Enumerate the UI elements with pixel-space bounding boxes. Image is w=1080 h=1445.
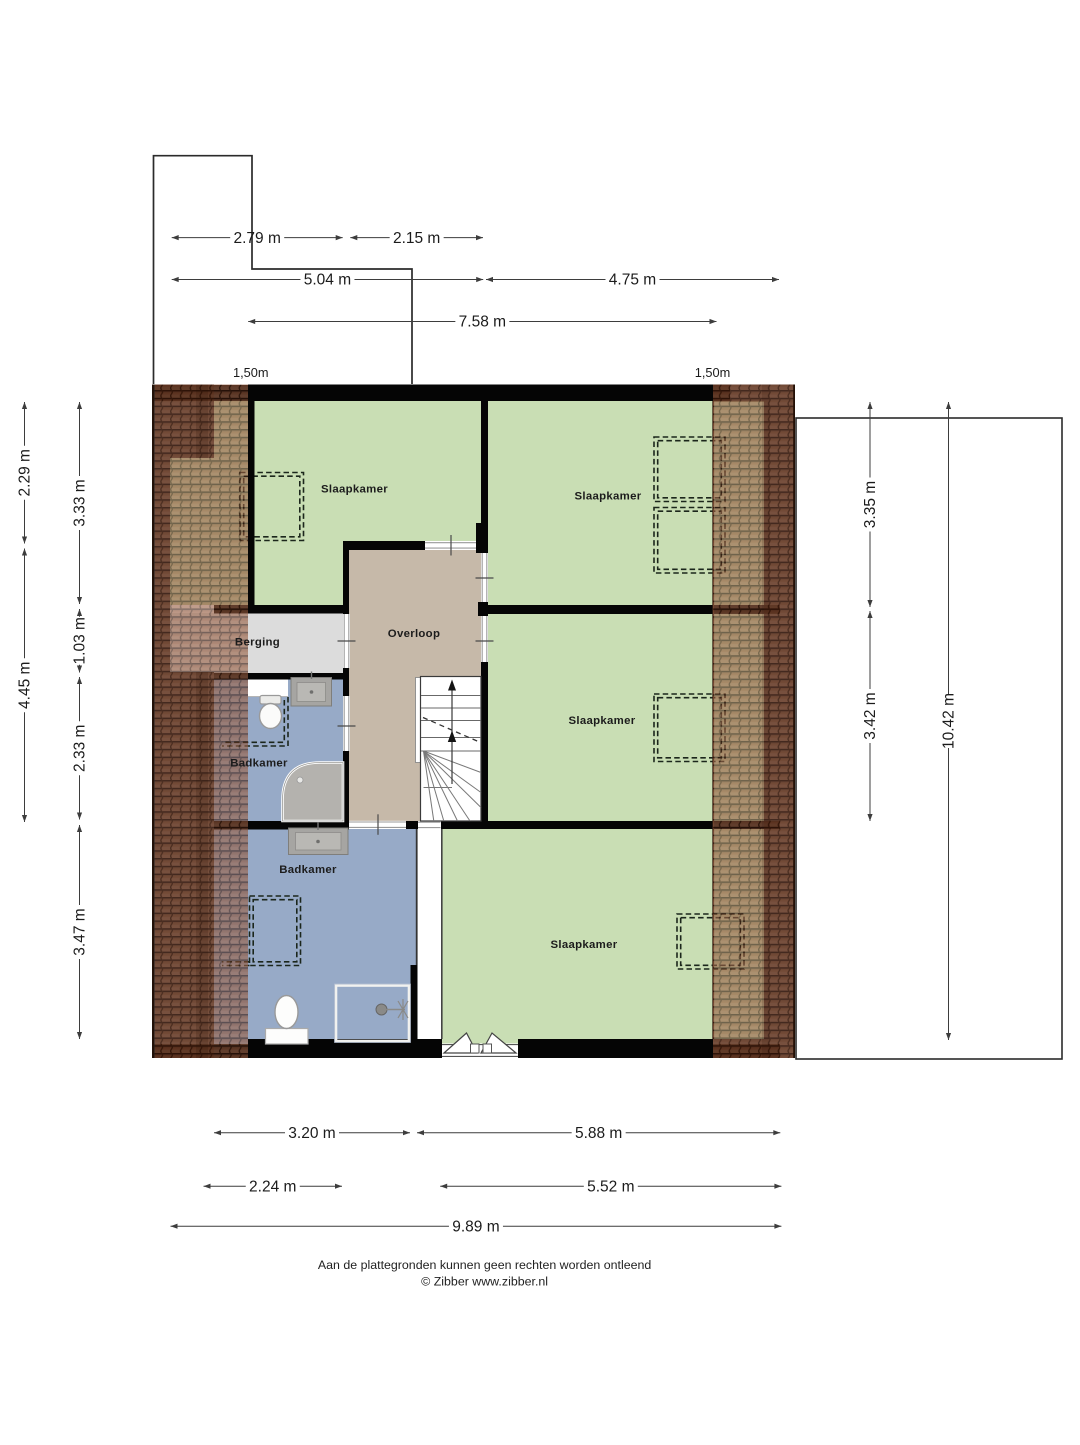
svg-text:4.75 m: 4.75 m bbox=[609, 272, 656, 289]
svg-text:2.29 m: 2.29 m bbox=[17, 449, 34, 496]
svg-text:Slaapkamer: Slaapkamer bbox=[321, 484, 388, 496]
svg-text:Slaapkamer: Slaapkamer bbox=[575, 491, 642, 503]
svg-text:10.42 m: 10.42 m bbox=[941, 693, 958, 749]
svg-text:2.15 m: 2.15 m bbox=[393, 230, 440, 247]
svg-text:7.58 m: 7.58 m bbox=[459, 314, 506, 331]
svg-text:1,50m: 1,50m bbox=[233, 365, 269, 380]
svg-text:3.35 m: 3.35 m bbox=[862, 481, 879, 528]
svg-text:1.03 m: 1.03 m bbox=[72, 617, 89, 664]
svg-text:Badkamer: Badkamer bbox=[230, 758, 288, 770]
svg-text:3.33 m: 3.33 m bbox=[72, 479, 89, 526]
svg-text:2.79 m: 2.79 m bbox=[234, 230, 281, 247]
svg-text:Overloop: Overloop bbox=[388, 628, 440, 640]
svg-text:2.33 m: 2.33 m bbox=[72, 725, 89, 772]
svg-text:2.24 m: 2.24 m bbox=[249, 1178, 296, 1195]
svg-text:Badkamer: Badkamer bbox=[279, 864, 337, 876]
svg-text:5.04 m: 5.04 m bbox=[304, 272, 351, 289]
svg-text:Slaapkamer: Slaapkamer bbox=[569, 715, 636, 727]
svg-text:4.45 m: 4.45 m bbox=[17, 662, 34, 709]
svg-text:Aan de plattegronden kunnen ge: Aan de plattegronden kunnen geen rechten… bbox=[318, 1258, 652, 1272]
svg-text:5.88 m: 5.88 m bbox=[575, 1125, 622, 1142]
svg-text:9.89 m: 9.89 m bbox=[452, 1218, 499, 1235]
svg-text:1,50m: 1,50m bbox=[695, 365, 731, 380]
svg-text:Slaapkamer: Slaapkamer bbox=[551, 939, 618, 951]
svg-text:3.20 m: 3.20 m bbox=[288, 1125, 335, 1142]
svg-text:© Zibber www.zibber.nl: © Zibber www.zibber.nl bbox=[421, 1275, 548, 1289]
svg-text:3.47 m: 3.47 m bbox=[72, 908, 89, 955]
svg-text:5.52 m: 5.52 m bbox=[587, 1178, 634, 1195]
svg-text:Berging: Berging bbox=[235, 637, 280, 649]
svg-text:3.42 m: 3.42 m bbox=[862, 692, 879, 739]
